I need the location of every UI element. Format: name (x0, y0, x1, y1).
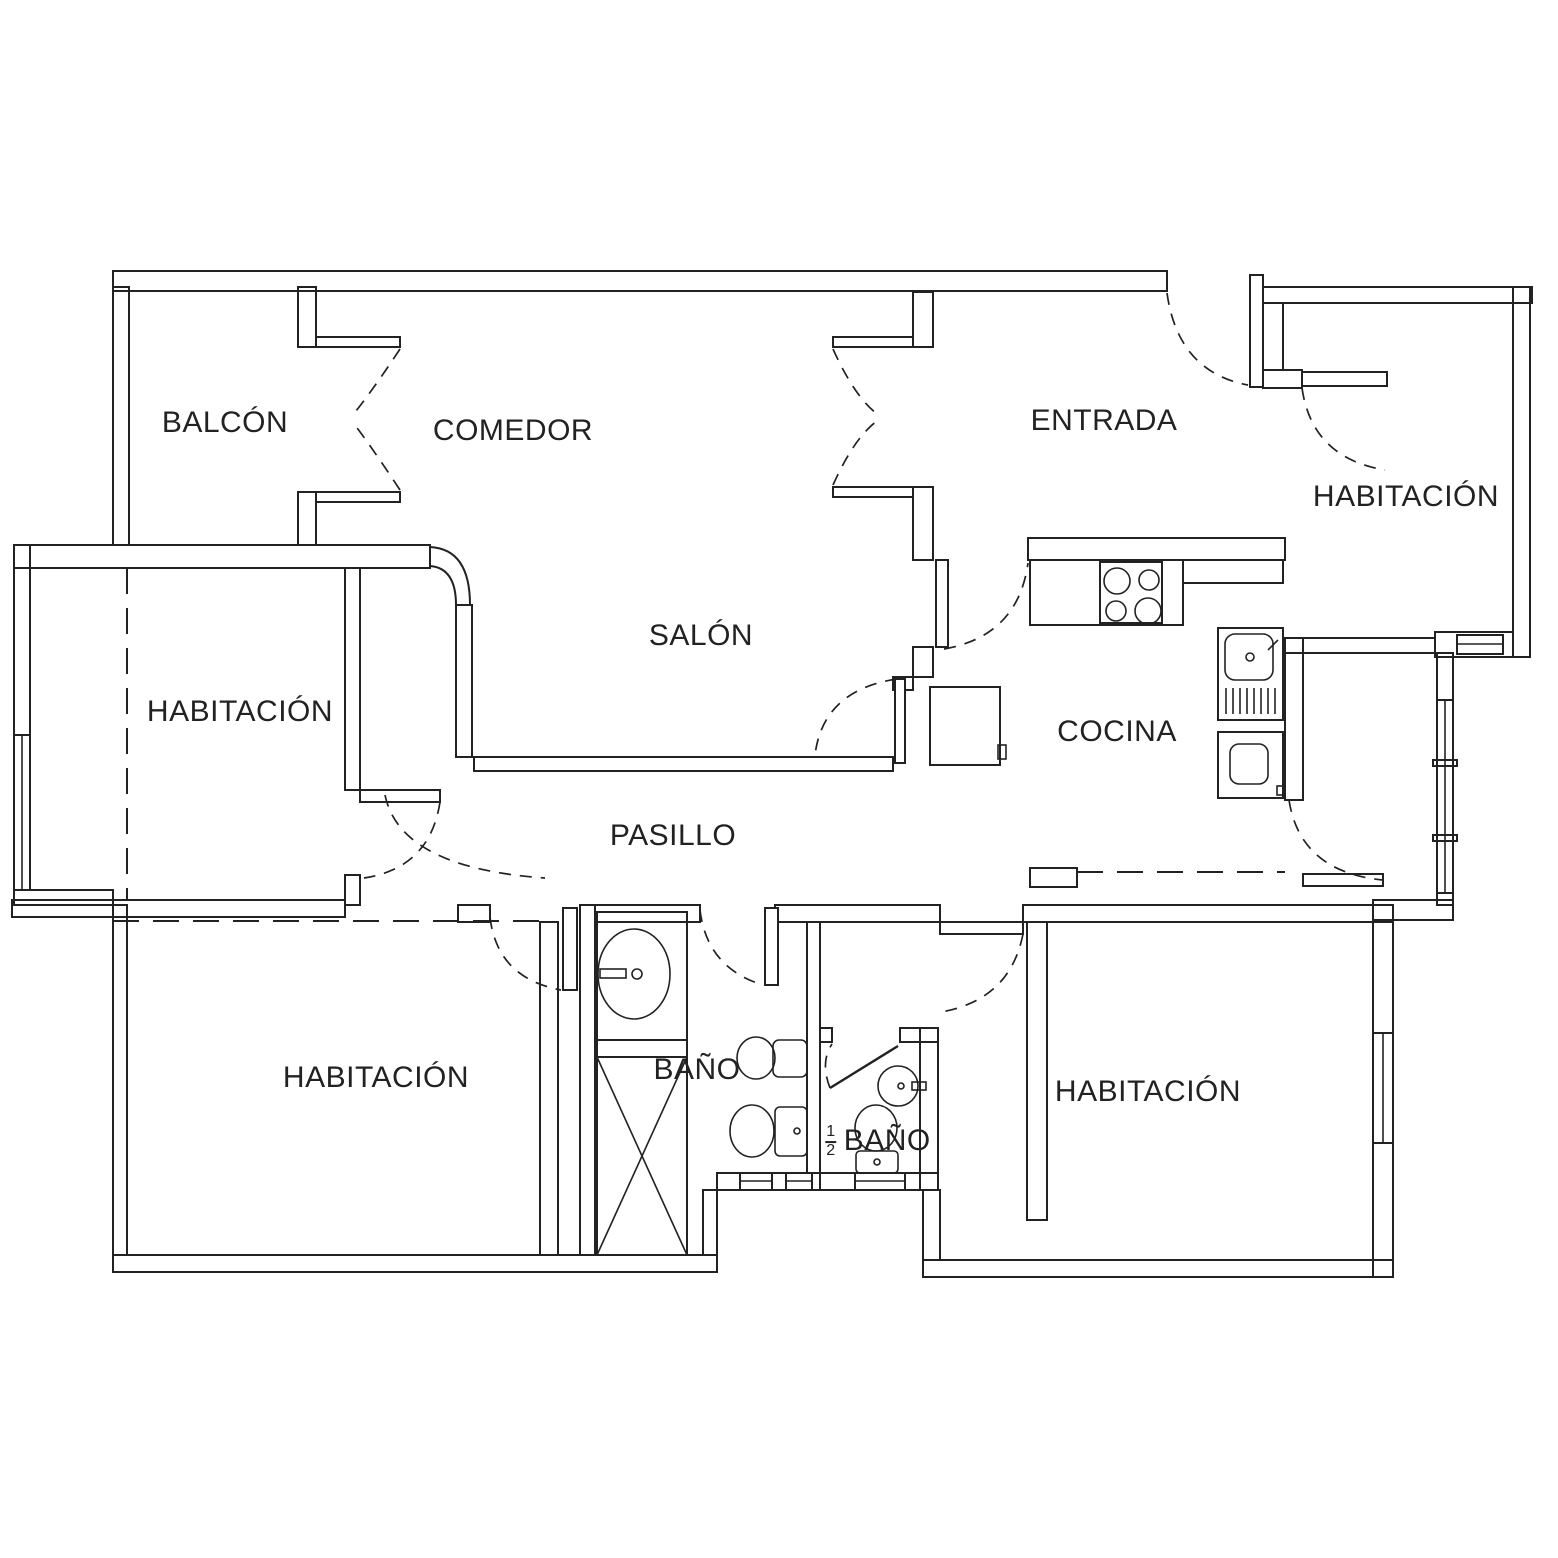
salon-east-door (936, 560, 1028, 649)
toilet (730, 1105, 807, 1157)
kitchen-counter (1030, 560, 1283, 625)
bathroom-vanity-sink (597, 912, 687, 1057)
balcony-french-doors (316, 337, 400, 502)
water-heater (930, 687, 1006, 765)
bedroom-west-window (14, 735, 30, 890)
floor-plan-page: BALCÓN COMEDOR ENTRADA HABITACIÓN SALÓN … (0, 0, 1558, 1558)
half-bath-round-sink (878, 1066, 926, 1106)
room-label-entrada: ENTRADA (1031, 404, 1178, 438)
half-fraction: 12 (825, 1124, 836, 1160)
room-label-bano: BAÑO (653, 1053, 740, 1087)
room-label-habitacion-noreste: HABITACIÓN (1313, 480, 1499, 514)
room-label-habitacion-sureste: HABITACIÓN (1055, 1075, 1241, 1109)
bidet (737, 1037, 807, 1079)
bedroom-se-east-window (1373, 1033, 1393, 1143)
kitchen-sink-with-drainboard (1218, 628, 1283, 720)
bedroom-ne-door (1302, 372, 1387, 470)
room-label-cocina: COCINA (1057, 715, 1177, 749)
floor-plan-drawing (0, 0, 1558, 1558)
front-door (1167, 275, 1263, 387)
kitchen-east-window (1433, 700, 1457, 893)
closet-swing-arc (385, 795, 545, 878)
room-label-balcon: BALCÓN (162, 406, 288, 440)
stove-4-burners (1100, 562, 1162, 624)
room-label-habitacion-oeste: HABITACIÓN (147, 695, 333, 729)
kitchen-door (1289, 800, 1383, 886)
bathroom-south-windows (740, 1173, 812, 1190)
washing-machine (1218, 732, 1283, 798)
bathroom-door (700, 908, 778, 985)
half-bath-south-window (855, 1173, 905, 1190)
half-bath-door (825, 1044, 898, 1088)
room-label-pasillo: PASILLO (610, 819, 736, 853)
salon-pasillo-door (815, 679, 905, 763)
bedroom-ne-south-window (1457, 635, 1503, 654)
room-label-medio-bano: 12BAÑO (825, 1124, 930, 1160)
room-label-comedor: COMEDOR (433, 414, 593, 448)
bedroom-se-door (940, 922, 1023, 1012)
bedroom-west-door (360, 790, 440, 878)
room-label-salon: SALÓN (649, 619, 753, 653)
comedor-entrada-double-doors (833, 337, 913, 497)
room-label-habitacion-suroeste: HABITACIÓN (283, 1061, 469, 1095)
curved-wall-corner (430, 547, 472, 757)
